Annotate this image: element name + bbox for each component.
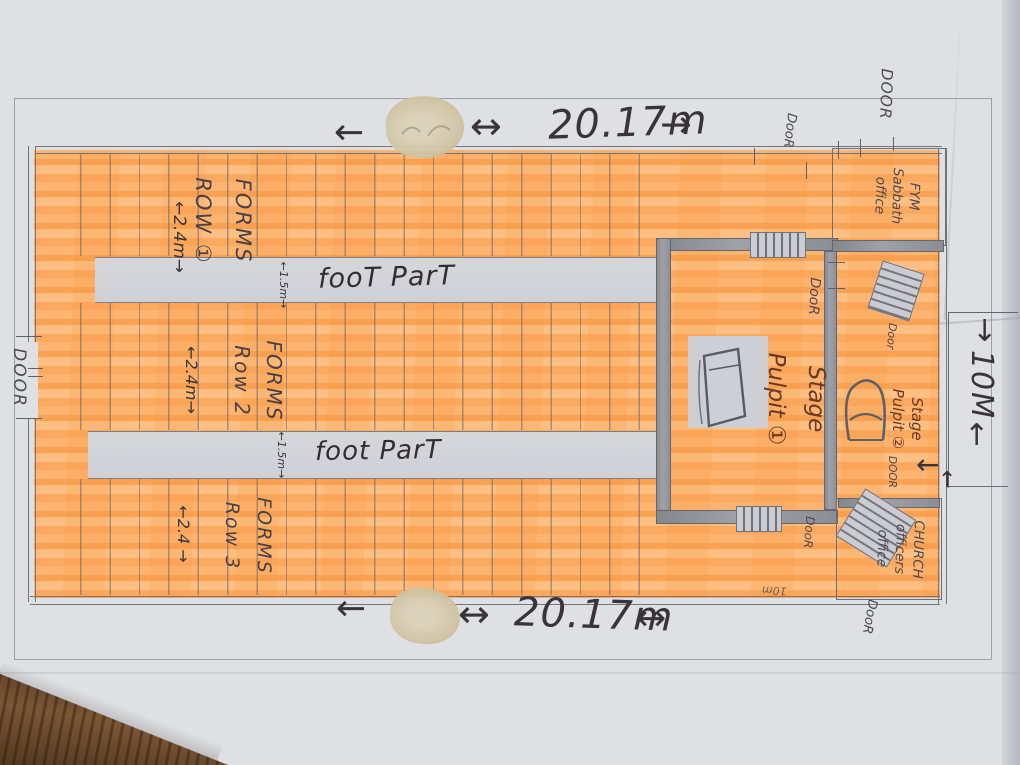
row1-label: FORMS ROW ① xyxy=(179,153,263,289)
paper-shade-right-edge xyxy=(1002,0,1020,765)
row3-label-line2: Row 3 xyxy=(216,472,248,600)
right-dimension-line-horizontal xyxy=(948,312,1018,313)
row2-label-line2: Row 2 xyxy=(226,310,258,452)
paper-crease-bottom xyxy=(0,672,1020,674)
stage1-window-hatch-bottom xyxy=(736,506,782,532)
row3-label: FORMS Row 3 xyxy=(212,472,280,600)
top-dimension-arrow-left: ← xyxy=(334,112,364,153)
church-office-label-line1: CHURCH xyxy=(907,499,928,600)
bottom-dimension-arrow-left: ← xyxy=(336,588,366,629)
row1-label-line2: ROW ① xyxy=(183,153,223,289)
row3-width-dimension: ←2.4 → xyxy=(167,468,193,600)
row3-label-line1: FORMS xyxy=(248,472,280,600)
row1-width-dimension: ←2.4m→ xyxy=(163,159,189,315)
fym-office-label-line3: office xyxy=(869,151,889,240)
fym-office-wall-bottom xyxy=(832,240,944,252)
stage1-label-line2: Pulpit ① xyxy=(756,336,796,462)
bottom-wall-note: 10m xyxy=(762,583,787,597)
right-dimension-arrow-up: ↑ xyxy=(964,418,989,453)
bench-divider-lines-row2 xyxy=(52,303,658,430)
top-dimension-arrow-double: ↔ xyxy=(470,104,502,148)
door-tick xyxy=(828,262,845,263)
door-label-left: DOOR xyxy=(3,336,29,420)
fym-office-label-line1: FYM xyxy=(903,152,923,241)
door-tick xyxy=(806,162,807,179)
church-office-label: CHURCH officers office xyxy=(871,498,928,600)
door-tick xyxy=(754,148,755,165)
stage1-label-line1: Stage xyxy=(796,336,836,462)
walkway-2-label: foot ParT xyxy=(315,435,442,467)
fym-office-label-line2: Sabbath xyxy=(886,152,906,241)
bottom-dimension-arrow-double-left: ↔ xyxy=(458,592,490,636)
top-dimension-arrow-right: → xyxy=(660,102,692,146)
right-dimension-arrow-left: ← xyxy=(916,448,939,481)
walkway-1-label: fooT ParT xyxy=(318,260,456,295)
stage1-wall-left xyxy=(656,238,671,524)
right-dimension-line-vertical xyxy=(948,312,949,488)
bench-divider-lines-row3 xyxy=(52,479,658,595)
door-tick xyxy=(828,288,845,289)
door-label-stage2-top: Door xyxy=(878,313,900,358)
chair-icon xyxy=(840,370,890,448)
door-tick-equals xyxy=(28,368,43,377)
row1-label-line1: FORMS xyxy=(223,153,263,289)
stage1-wall-top xyxy=(656,238,838,251)
right-dimension-arrow-up-small: ↑ xyxy=(938,468,956,493)
podium-icon xyxy=(690,344,752,436)
door-label-stage2-bottom: DOOR xyxy=(882,450,898,494)
photographed-floor-plan: FORMS ROW ① ←2.4m→ FORMS Row 2 ←2.4m→ FO… xyxy=(0,0,1020,765)
church-office-label-line2: officers xyxy=(889,499,910,600)
walkway-2-width-dimension: ←1.5m→ xyxy=(270,423,288,487)
right-dimension-value: 10M xyxy=(965,343,999,427)
erased-scribble-top xyxy=(398,112,458,148)
stage1-window-hatch-top xyxy=(750,232,806,258)
walkway-1-width-dimension: ←1.5m→ xyxy=(272,252,290,318)
bench-divider-lines-row1 xyxy=(52,154,658,256)
stage1-label: Stage Pulpit ① xyxy=(752,336,836,462)
bottom-dimension-arrow-double-right: ↔ xyxy=(636,598,666,639)
door-label-stage-top: DooR xyxy=(796,263,823,328)
fym-office-label: FYM Sabbath office xyxy=(868,151,923,241)
right-dimension-line-bottom xyxy=(948,486,1008,487)
door-label-top-right: DOOR xyxy=(868,57,897,132)
church-office-label-line3: office xyxy=(871,498,892,599)
row2-width-dimension: ←2.4m→ xyxy=(175,308,201,452)
